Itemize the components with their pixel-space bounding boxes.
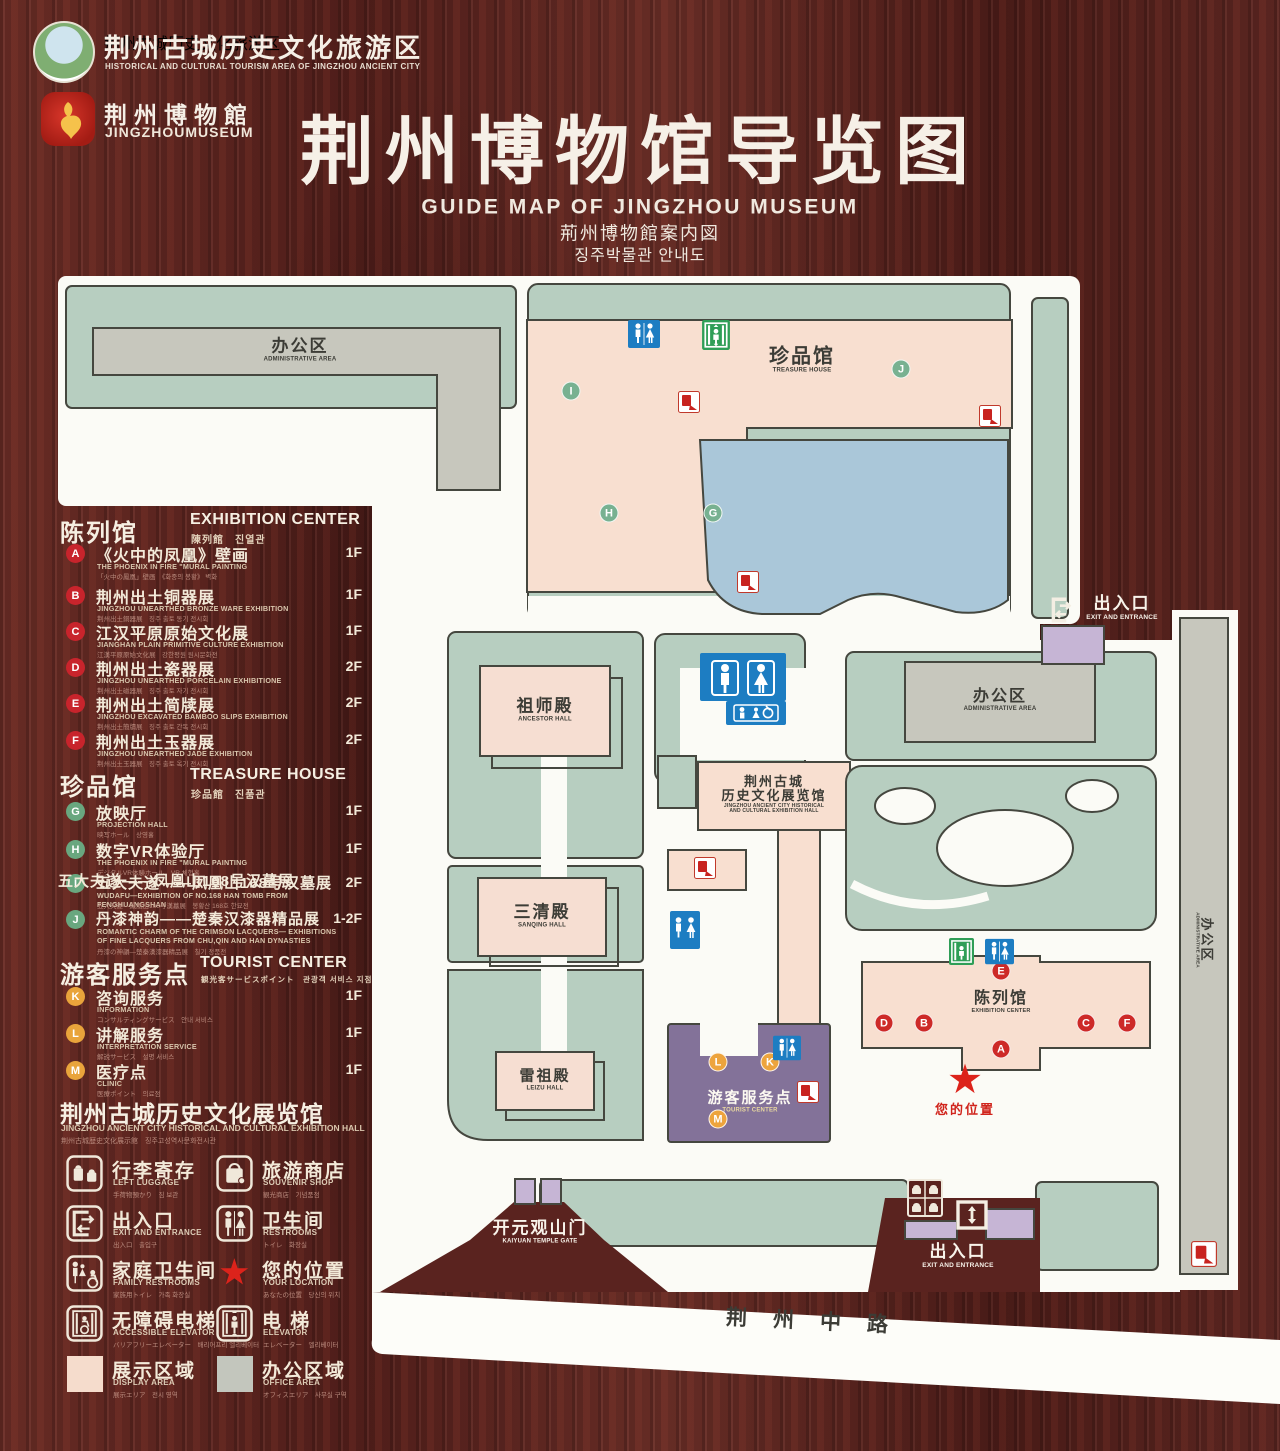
item-e-en: JINGZHOU EXCAVATED BAMBOO SLIPS EXHIBITI… (97, 712, 327, 721)
fac-1-en: SOUVENIR SHOP (263, 1178, 334, 1187)
marker-c: C (1077, 1014, 1096, 1033)
aed-marker-icon (737, 571, 759, 593)
section-treasure-house-title-en: TREASURE HOUSE (190, 766, 346, 784)
admin-right-label: 办公区ADMINISTRATIVE AREA (964, 688, 1037, 712)
item-f-en: JINGZHOU UNEARTHED JADE EXHIBITION (97, 749, 327, 758)
legend-sidebar: 陈列馆 EXHIBITION CENTER 陳列館 진열관 A 《火中的凤凰》壁… (58, 505, 378, 1445)
badge-b: B (66, 586, 85, 605)
marker-m: M (709, 1110, 728, 1129)
marker-b: B (915, 1014, 934, 1033)
legend-item-l: L 讲解服务 INTERPRETATION SERVICE 解説サービス 설명 … (58, 1020, 378, 1056)
badge-a: A (66, 544, 85, 563)
item-e-floor: 2F (320, 694, 362, 710)
restroom-icon (773, 1035, 801, 1061)
fac-1-sub: 観光商店 기념품점 (263, 1189, 319, 1199)
badge-f: F (66, 731, 85, 750)
item-d-floor: 2F (320, 658, 362, 674)
restroom-icon (216, 1205, 253, 1242)
item-j-cn: 丹漆神韵——楚秦汉漆器精品展 (96, 908, 320, 929)
your-location-label: 您的位置 (935, 1103, 995, 1117)
marker-f: F (1118, 1014, 1137, 1033)
item-m-floor: 1F (320, 1061, 362, 1077)
exit-icon (66, 1205, 103, 1242)
facility-souvenir-shop: 旅游商店 SOUVENIR SHOP 観光商店 기념품점 (216, 1155, 366, 1201)
elevator-icon (216, 1305, 253, 1342)
item-g-en: PROJECTION HALL (97, 820, 327, 829)
restroom-family-icon (700, 653, 786, 725)
admin-topleft-label: 办公区ADMINISTRATIVE AREA (264, 337, 337, 362)
facility-accessible-elevator: 无障碍电梯 ACCESSIBLE ELEVATOR バリアフリーエレベーター 배… (66, 1305, 216, 1351)
item-f-floor: 2F (320, 731, 362, 747)
facility-family-restrooms: 家庭卫生间 FAMILY RESTROOMS 家族用トイレ 가족 화장실 (66, 1255, 216, 1301)
badge-l: L (66, 1024, 85, 1043)
legend-item-a: A 《火中的凤凰》壁画 THE PHOENIX IN FIRE "MURAL P… (58, 540, 378, 580)
admin-strip-label: 办公区ADMINISTRATIVE AREA (1194, 912, 1213, 968)
marker-h: H (600, 504, 619, 523)
exit-icon (956, 1200, 988, 1230)
office-area-swatch (217, 1356, 253, 1392)
section-treasure-house-title: 珍品馆 (60, 767, 138, 802)
fac-0-en: LEFT LUGGAGE (113, 1178, 179, 1187)
fac-6-en: ACCESSIBLE ELEVATOR (113, 1328, 215, 1337)
section-exhibition-center-title-en: EXHIBITION CENTER (190, 511, 360, 529)
item-h-en: THE PHOENIX IN FIRE "MURAL PAINTING (97, 858, 327, 867)
legend-item-m: M 医疗点 CLINIC 医療ポイント 의료점 1F (58, 1057, 378, 1093)
item-b-en: JINGZHOU UNEARTHED BRONZE WARE EXHIBITIO… (97, 604, 327, 613)
fac-4-en: FAMILY RESTROOMS (113, 1278, 200, 1287)
facility-restrooms: 卫生间 RESTROOMS トイレ 화장실 (216, 1205, 366, 1251)
marker-d: D (875, 1014, 894, 1033)
fac-2-en: EXIT AND ENTRANCE (113, 1228, 202, 1237)
sanqing-hall-label: 三清殿SANQING HALL (514, 903, 571, 928)
restroom-icon (628, 320, 660, 348)
item-h-floor: 1F (320, 840, 362, 856)
facility-elevator: 电 梯 ELEVATOR エレベーター 엘리베이터 (216, 1305, 366, 1351)
exhibition-hall-label: 荆州古城 历史文化展览馆 JINGZHOU ANCIENT CITY HISTO… (721, 775, 826, 815)
item-c-en: JIANGHAN PLAIN PRIMITIVE CULTURE EXHIBIT… (97, 640, 327, 649)
badge-c: C (66, 622, 85, 641)
item-i-floor: 2F (320, 874, 362, 890)
marker-a: A (992, 1040, 1011, 1059)
item-j-floor: 1-2F (320, 910, 362, 926)
item-l-en: INTERPRETATION SERVICE (97, 1042, 327, 1051)
item-b-floor: 1F (320, 586, 362, 602)
exhibition-center-label: 陈列馆EXHIBITION CENTER (971, 990, 1030, 1014)
fac-5-sub: あなたの位置 당신의 위치 (263, 1289, 340, 1299)
legend-item-f: F 荆州出土玉器展 JINGZHOU UNEARTHED JADE EXHIBI… (58, 727, 378, 763)
fac-9-en: OFFICE AREA (263, 1378, 320, 1387)
hall-note-sub: 荆州古城歴史文化展示館 징주고성역사문화전시관 (61, 1136, 216, 1146)
item-i-cn: 五大夫遂——凤凰山168号汉墓展 (96, 872, 332, 893)
fac-3-en: RESTROOMS (263, 1228, 317, 1237)
badge-d: D (66, 658, 85, 677)
legend-item-g: G 放映厅 PROJECTION HALL 映写ホール 상영홀 1F (58, 798, 378, 834)
restroom-icon (985, 938, 1014, 965)
badge-h: H (66, 840, 85, 859)
road-label: 荆州中路 (726, 1306, 915, 1338)
facility-exit: 出入口 EXIT AND ENTRANCE 出入口 출입구 (66, 1205, 216, 1251)
item-c-floor: 1F (320, 622, 362, 638)
item-a-en: THE PHOENIX IN FIRE "MURAL PAINTING (97, 562, 327, 571)
badge-e: E (66, 694, 85, 713)
aed-marker-icon (797, 1081, 819, 1103)
legend-item-i: I 五大夫遂——凤凰山168号汉墓展 五大夫遂——凤凰山168号汉墓展 WUDA… (58, 870, 378, 910)
luggage-lockers-icon (907, 1179, 943, 1217)
legend-item-c: C 江汉平原原始文化展 JIANGHAN PLAIN PRIMITIVE CUL… (58, 618, 378, 654)
badge-j: J (66, 910, 85, 929)
fac-2-sub: 出入口 출입구 (113, 1239, 157, 1249)
item-k-floor: 1F (320, 987, 362, 1003)
badge-g: G (66, 802, 85, 821)
legend-item-k: K 咨询服务 INFORMATION コンサルティングサービス 안내 서비스 1… (58, 983, 378, 1019)
item-d-en: JINGZHOU UNEARTHED PORCELAIN EXHIBITIONE (97, 676, 327, 685)
item-l-floor: 1F (320, 1024, 362, 1040)
badge-m: M (66, 1061, 85, 1080)
restroom-icon (670, 911, 700, 949)
fac-5-en: YOUR LOCATION (263, 1278, 333, 1287)
section-tourist-center-title-en: TOURIST CENTER (200, 954, 347, 972)
exit-top-label: 出入口 EXIT AND ENTRANCE (1086, 595, 1157, 621)
fac-9-sub: オフィスエリア 사무실 구역 (263, 1389, 347, 1399)
fac-8-sub: 展示エリア 전시 영역 (113, 1389, 178, 1399)
luggage-icon (66, 1155, 103, 1192)
treasure-house-label: 珍品馆TREASURE HOUSE (769, 346, 835, 375)
item-j-en: ROMANTIC CHARM OF THE CRIMSON LACQUERS— … (97, 927, 347, 945)
item-a-sub: 「火中の鳳凰」壁画 《화중의 봉황》 벽화 (97, 571, 327, 581)
elevator-icon (949, 938, 974, 965)
fac-3-sub: トイレ 화장실 (263, 1239, 307, 1249)
fac-4-sub: 家族用トイレ 가족 화장실 (113, 1289, 190, 1299)
item-g-floor: 1F (320, 802, 362, 818)
family-restroom-icon (66, 1255, 103, 1292)
gate-label: 开元观山门 KAIYUAN TEMPLE GATE (493, 1219, 588, 1244)
your-location-star-icon: ★ (949, 1061, 981, 1100)
fac-8-en: DISPLAY AREA (113, 1378, 175, 1387)
fac-7-sub: エレベーター 엘리베이터 (263, 1339, 338, 1349)
marker-j: J (892, 360, 911, 379)
aed-marker-icon (678, 391, 700, 413)
facility-your-location: ★ 您的位置 YOUR LOCATION あなたの位置 당신의 위치 (216, 1255, 366, 1301)
facility-display-area: 展示区域 DISPLAY AREA 展示エリア 전시 영역 (66, 1355, 216, 1401)
legend-item-d: D 荆州出土瓷器展 JINGZHOU UNEARTHED PORCELAIN E… (58, 654, 378, 690)
legend-item-h: H 数字VR体验厅 THE PHOENIX IN FIRE "MURAL PAI… (58, 836, 378, 872)
aed-marker-icon (979, 405, 1001, 427)
accessible-elevator-icon (66, 1305, 103, 1342)
item-k-en: INFORMATION (97, 1005, 327, 1014)
ancestor-hall-label: 祖师殿ANCESTOR HALL (517, 697, 574, 722)
elevator-icon (701, 320, 731, 350)
legend-item-b: B 荆州出土铜器展 JINGZHOU UNEARTHED BRONZE WARE… (58, 582, 378, 618)
facility-office-area: 办公区域 OFFICE AREA オフィスエリア 사무실 구역 (216, 1355, 366, 1401)
marker-i: I (562, 382, 581, 401)
hall-note-en: JINGZHOU ANCIENT CITY HISTORICAL AND CUL… (61, 1123, 365, 1133)
display-area-swatch (67, 1356, 103, 1392)
facility-left-luggage: 行李寄存 LEFT LUGGAGE 手荷物預かり 짐 보관 (66, 1155, 216, 1201)
fac-0-sub: 手荷物預かり 짐 보관 (113, 1189, 178, 1199)
badge-k: K (66, 987, 85, 1006)
exit-icon (1048, 596, 1076, 624)
legend-item-e: E 荆州出土简牍展 JINGZHOU EXCAVATED BAMBOO SLIP… (58, 690, 378, 726)
aed-marker-icon (694, 857, 716, 879)
marker-l: L (709, 1053, 728, 1072)
exit-bottom-label: 出入口 EXIT AND ENTRANCE (922, 1243, 993, 1269)
marker-g: G (704, 504, 723, 523)
page: { "header": { "org": {"cn":"荆州古城历史文化旅游区"… (0, 0, 1280, 1451)
aed-marker-icon (1191, 1241, 1217, 1267)
item-m-en: CLINIC (97, 1079, 327, 1088)
item-a-floor: 1F (320, 544, 362, 560)
leizu-hall-label: 雷祖殿LEIZU HALL (519, 1068, 570, 1091)
location-star-icon: ★ (220, 1253, 249, 1291)
fac-7-en: ELEVATOR (263, 1328, 308, 1337)
shopping-bag-icon (216, 1155, 253, 1192)
